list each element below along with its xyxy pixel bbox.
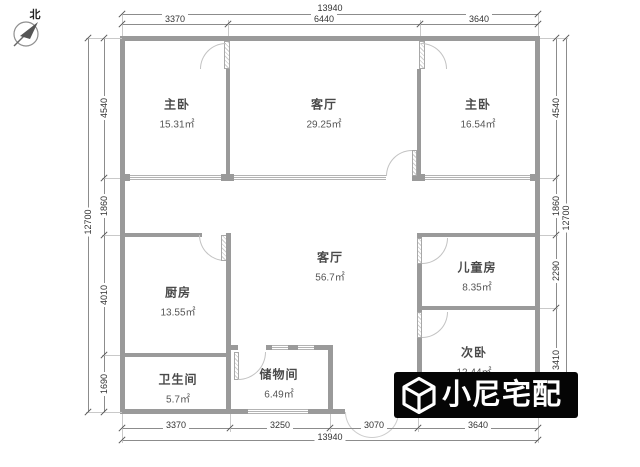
ext-line: [102, 178, 120, 179]
dim-left-seg-3: 4010: [99, 283, 109, 307]
room-master-left: 主卧 15.31㎡: [159, 96, 194, 131]
wall-outer-bottom-left: [120, 409, 345, 414]
floor-plan: 北: [0, 0, 640, 467]
wall-bedroom-left-divider: [226, 69, 230, 176]
ext-line: [102, 355, 120, 356]
room-name: 次卧: [456, 344, 491, 361]
window-storage-2: [298, 345, 314, 350]
dim-line-top-segments: [122, 24, 538, 25]
watermark-badge: 小尼宅配: [394, 372, 578, 418]
room-name: 厨房: [160, 284, 195, 301]
door-leaf-living-top: [412, 150, 417, 176]
room-master-right: 主卧 16.54㎡: [460, 96, 495, 131]
ext-line: [230, 414, 231, 432]
room-living-top: 客厅 29.25㎡: [306, 96, 341, 131]
wall-kitchen-top: [120, 233, 202, 237]
wall-kitchen-right: [226, 233, 231, 412]
dim-bottom-seg-2: 3250: [267, 420, 293, 430]
ext-line: [538, 14, 539, 36]
door-arc-living-top: [386, 150, 412, 176]
dim-right-seg-3: 2290: [551, 259, 561, 283]
wall-outer-left: [120, 36, 125, 414]
room-area: 13.55㎡: [160, 304, 195, 319]
room-living-main: 客厅 56.7㎡: [315, 249, 344, 284]
dim-bottom-total: 13940: [314, 432, 345, 442]
cube-logo-icon: [400, 376, 438, 414]
room-name: 主卧: [460, 96, 495, 113]
dim-bottom-seg-1: 3370: [163, 420, 189, 430]
window-storage-1: [272, 345, 288, 350]
room-area: 16.54㎡: [460, 116, 495, 131]
dim-bottom-seg-4: 3640: [465, 420, 491, 430]
door-arc-children: [422, 238, 448, 264]
watermark-text: 小尼宅配: [442, 381, 562, 410]
room-area: 29.25㎡: [306, 116, 341, 131]
room-area: 56.7㎡: [315, 269, 344, 284]
dim-left-seg-4: 1690: [99, 372, 109, 396]
room-name: 卫生间: [158, 371, 197, 388]
dim-right-seg-4: 3410: [551, 348, 561, 372]
dim-bottom-seg-3: 3070: [361, 420, 387, 430]
room-area: 15.31㎡: [159, 116, 194, 131]
wall-corridor-band: [125, 175, 535, 180]
wall-storage-top-a: [226, 345, 238, 350]
wall-joint-a: [120, 174, 130, 181]
wall-outer-top: [120, 36, 540, 41]
room-name: 客厅: [306, 96, 341, 113]
wall-storage-right: [328, 345, 333, 412]
dim-right-seg-1: 4540: [551, 96, 561, 120]
room-area: 6.49㎡: [259, 386, 298, 401]
room-bathroom: 卫生间 5.7㎡: [158, 371, 197, 406]
door-arc-master-right: [421, 43, 447, 69]
room-name: 储物间: [259, 366, 298, 383]
dim-top-seg-1: 3370: [162, 14, 188, 24]
wall-joint-d: [530, 174, 540, 181]
dim-left-seg-2: 1860: [99, 194, 109, 218]
dim-right-seg-2: 1860: [551, 194, 561, 218]
dim-top-seg-2: 6440: [311, 14, 337, 24]
wall-joint-b: [221, 174, 234, 181]
wall-children-secondary-divider: [417, 306, 540, 310]
door-arc-master-left: [200, 43, 226, 69]
ext-line: [122, 14, 123, 36]
room-area: 5.7㎡: [158, 391, 197, 406]
room-children: 儿童房 8.35㎡: [457, 259, 496, 294]
room-kitchen: 厨房 13.55㎡: [160, 284, 195, 319]
room-name: 儿童房: [457, 259, 496, 276]
dim-top-seg-3: 3640: [466, 14, 492, 24]
north-label: 北: [27, 10, 44, 20]
wall-bathroom-top: [120, 353, 226, 357]
dim-right-total: 12700: [561, 203, 571, 232]
ext-line: [330, 414, 331, 432]
wall-children-top: [417, 233, 540, 237]
window-bottom-storage: [248, 409, 308, 414]
room-area: 8.35㎡: [457, 279, 496, 294]
door-arc-secondary: [422, 312, 448, 338]
wall-bedroom-right-divider: [417, 69, 421, 176]
ext-line: [102, 235, 120, 236]
room-storage: 储物间 6.49㎡: [259, 366, 298, 401]
room-name: 客厅: [315, 249, 344, 266]
dim-left-seg-1: 4540: [99, 96, 109, 120]
wall-right-rooms-b: [417, 264, 422, 312]
dim-left-total: 12700: [83, 207, 93, 236]
room-name: 主卧: [159, 96, 194, 113]
dim-top-total: 13940: [314, 3, 345, 13]
wall-outer-right: [535, 36, 540, 414]
